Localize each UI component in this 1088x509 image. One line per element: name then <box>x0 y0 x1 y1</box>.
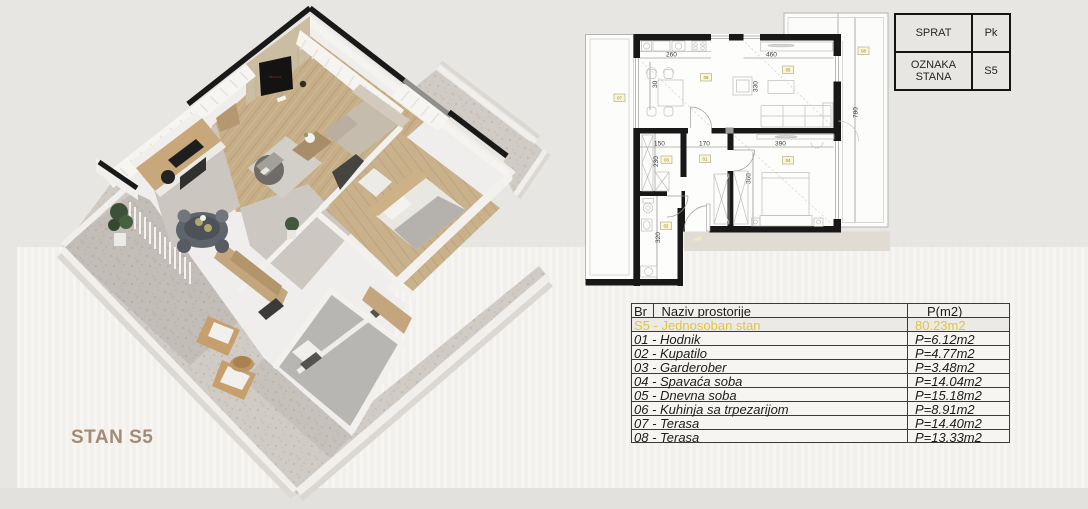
svg-text:03: 03 <box>664 158 669 163</box>
svg-text:320: 320 <box>655 232 662 243</box>
svg-text:150: 150 <box>654 141 665 148</box>
svg-text:360: 360 <box>746 173 753 184</box>
svg-text:460: 460 <box>766 52 777 59</box>
svg-text:05: 05 <box>786 68 791 73</box>
svg-text:NETFLIX: NETFLIX <box>269 75 281 79</box>
svg-text:170: 170 <box>699 141 710 148</box>
svg-text:02: 02 <box>664 224 669 229</box>
svg-text:01: 01 <box>703 157 708 162</box>
svg-text:04: 04 <box>786 158 791 163</box>
svg-text:390: 390 <box>775 141 786 148</box>
svg-text:260: 260 <box>666 52 677 59</box>
svg-text:780: 780 <box>853 107 860 118</box>
svg-text:08: 08 <box>861 49 866 54</box>
svg-text:330: 330 <box>753 81 760 92</box>
svg-text:07: 07 <box>617 96 622 101</box>
svg-text:230: 230 <box>653 156 660 167</box>
svg-text:06: 06 <box>704 75 709 80</box>
